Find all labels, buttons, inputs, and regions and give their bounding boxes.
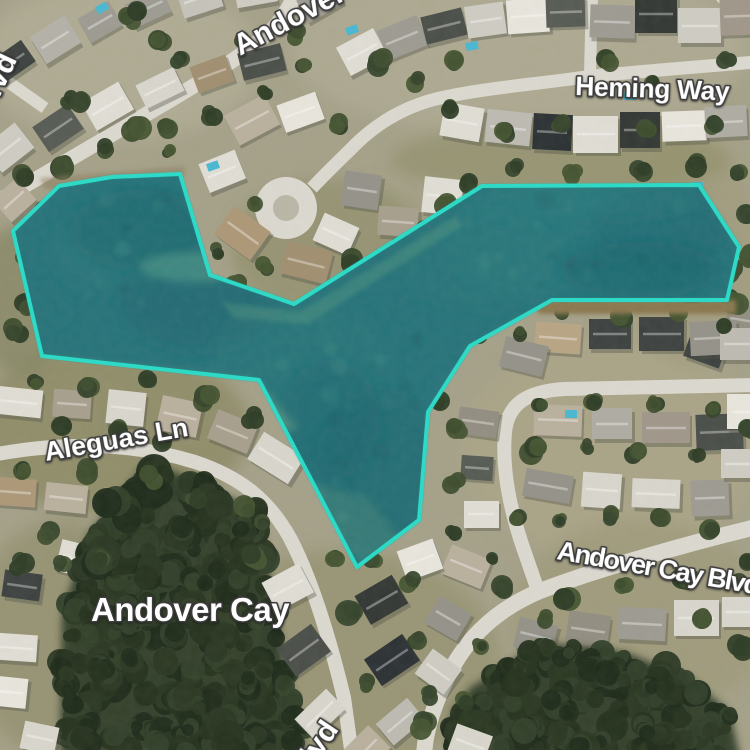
svg-text:Heming Way: Heming Way bbox=[575, 71, 731, 106]
svg-text:Andover Cay: Andover Cay bbox=[91, 591, 290, 628]
